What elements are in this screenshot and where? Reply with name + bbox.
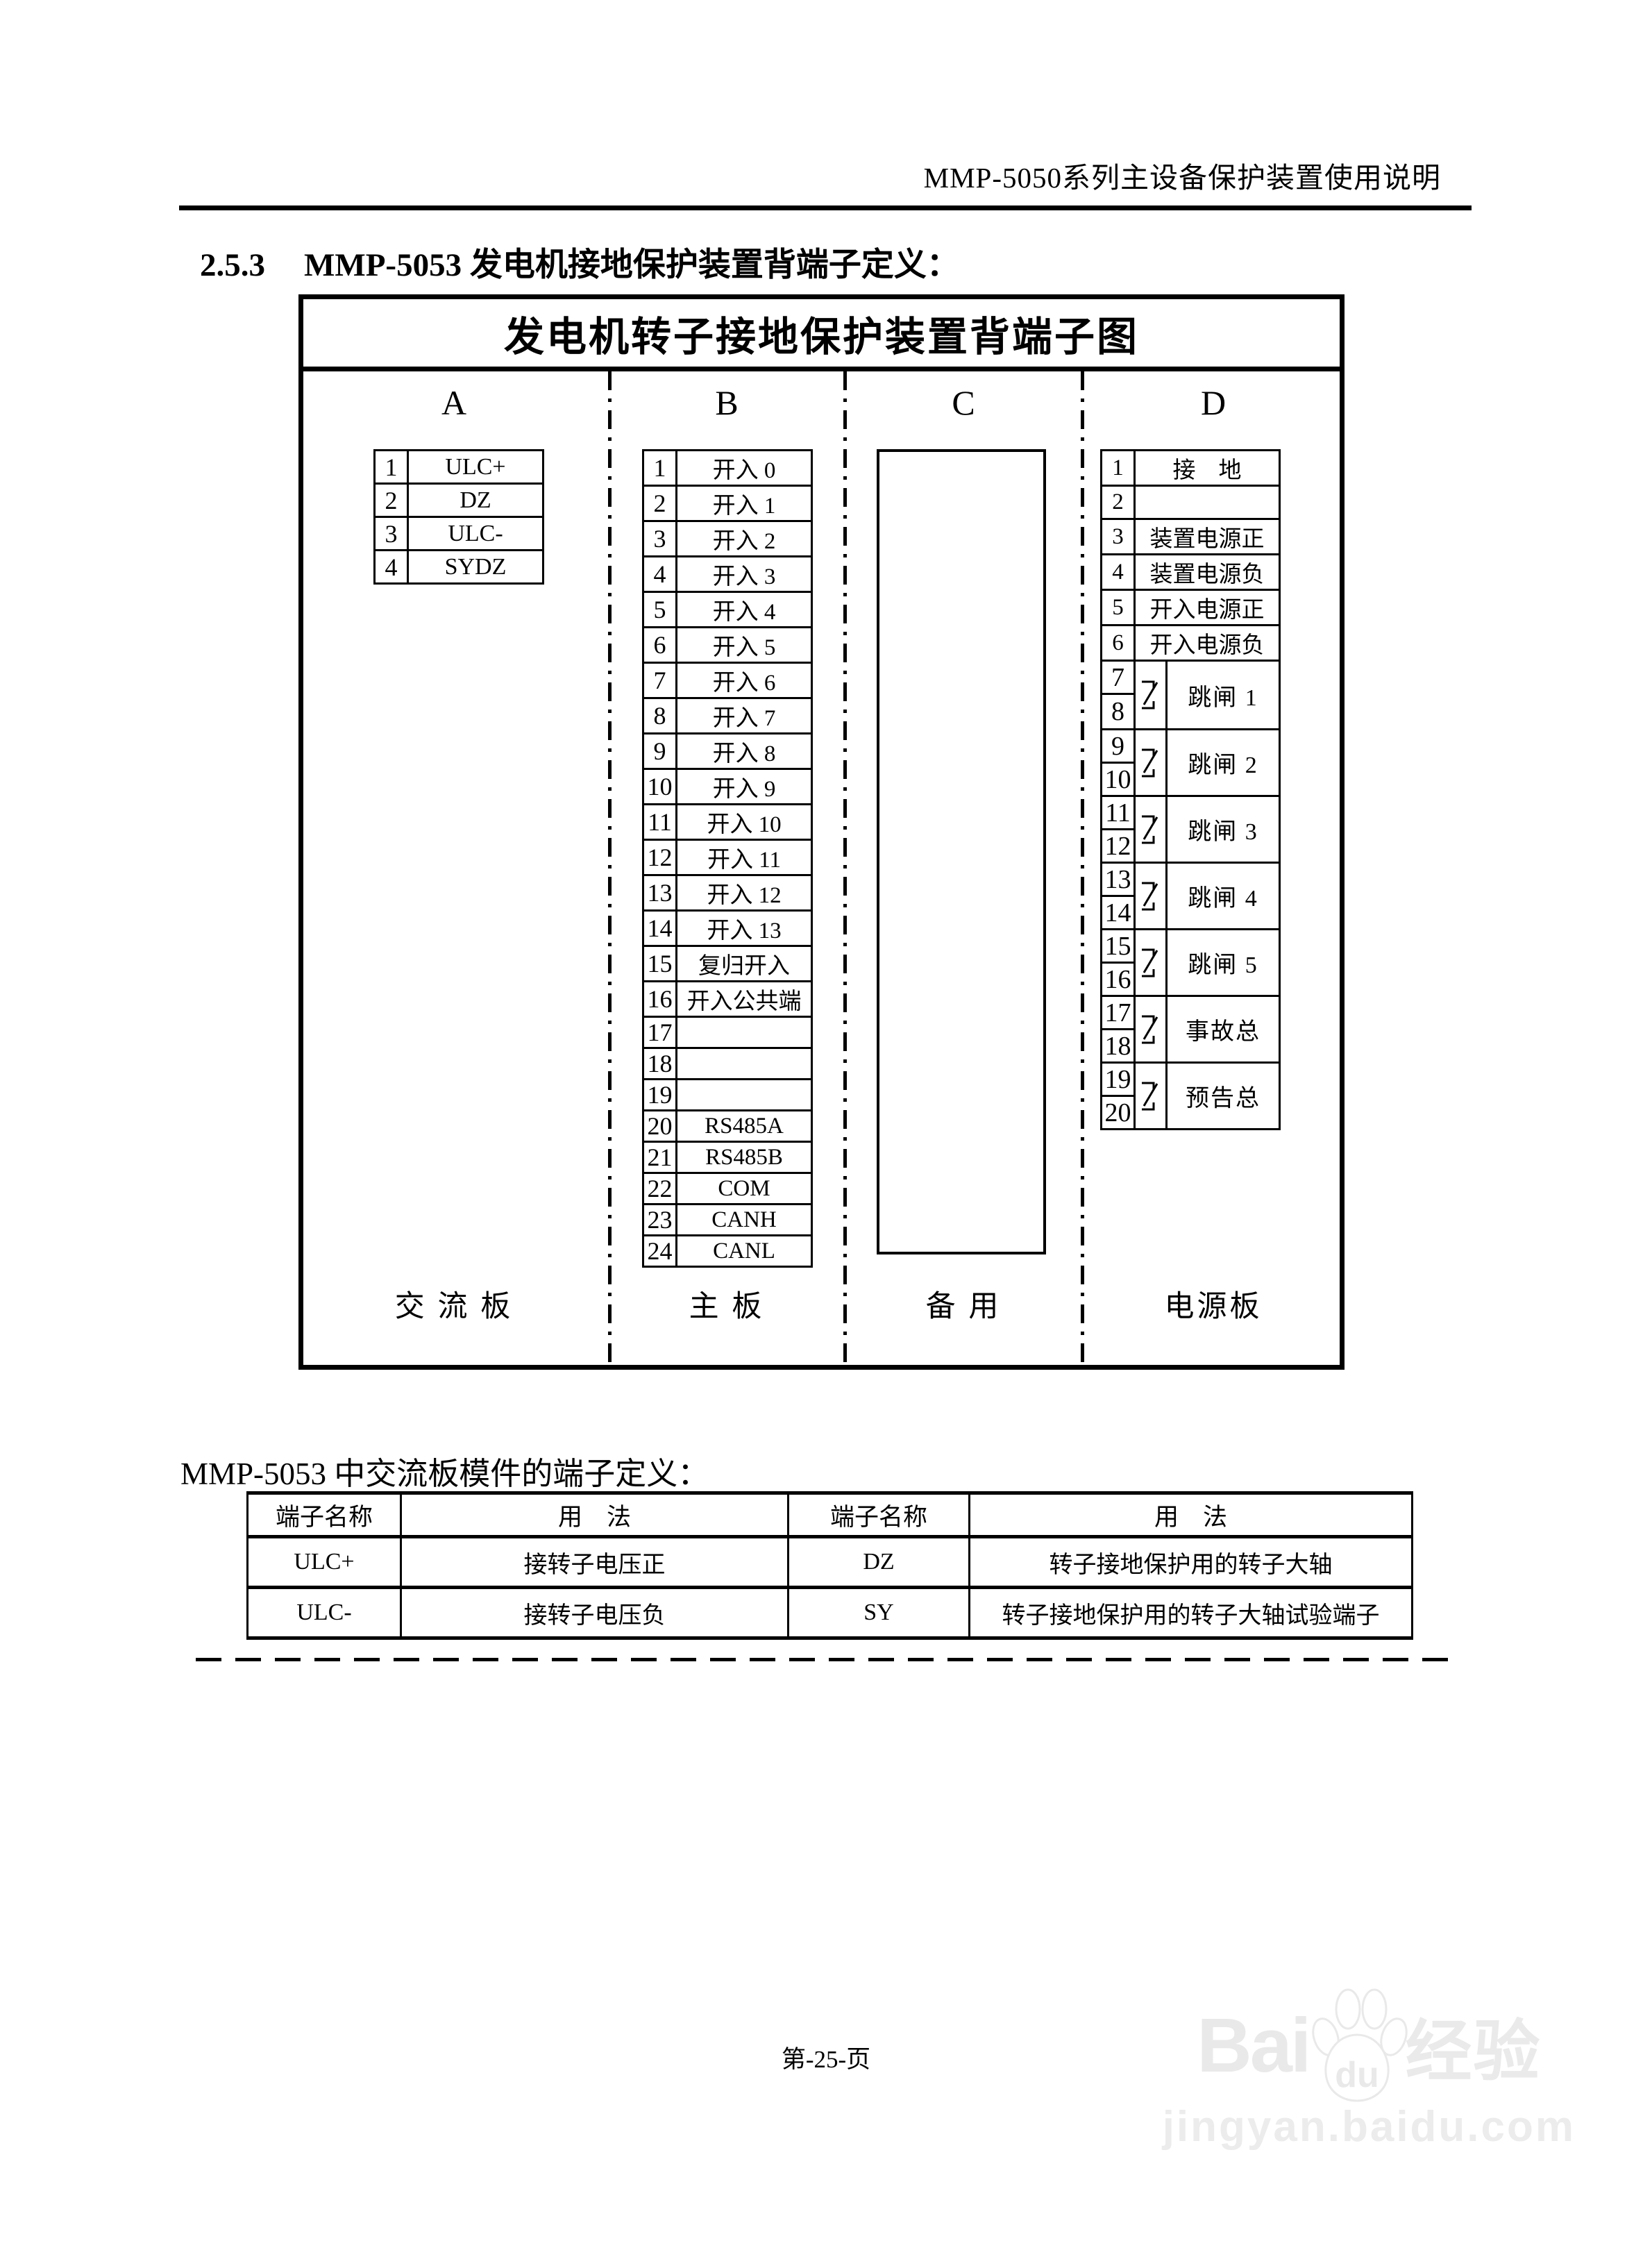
- terminal-label: 装置电源负: [1135, 555, 1280, 590]
- terminal-number: 6: [643, 628, 677, 663]
- relay-output-group: 9 10 跳闸 2: [1102, 728, 1279, 795]
- terminal-row: 2 开入 1: [643, 486, 812, 521]
- terminal-label: 开入 10: [677, 805, 812, 840]
- relay-contact-icon: [1136, 997, 1168, 1061]
- terminal-row: 9 开入 8: [643, 734, 812, 769]
- column-separator: [608, 371, 612, 1365]
- terminal-row: 2 DZ: [375, 484, 543, 517]
- terminal-row: 4 SYDZ: [375, 551, 543, 584]
- relay-output-groups: 7 8 跳闸 1: [1100, 662, 1281, 1130]
- terminal-name-cell: DZ: [789, 1537, 970, 1588]
- table-row: ULC+ 接转子电压正 DZ 转子接地保护用的转子大轴: [248, 1537, 1413, 1588]
- terminal-number: 9: [1102, 730, 1133, 764]
- terminal-number: 4: [375, 551, 408, 584]
- column-letter-c: C: [952, 383, 975, 423]
- terminal-row: 16 开入公共端: [643, 982, 812, 1017]
- usage-cell: 接转子电压正: [401, 1537, 789, 1588]
- relay-output-label: 事故总: [1168, 997, 1279, 1061]
- baidu-jingyan-text: 经验: [1405, 1997, 1541, 2094]
- terminal-number: 7: [1102, 662, 1133, 695]
- terminal-label: [677, 1048, 812, 1080]
- terminal-label: 开入 7: [677, 698, 812, 734]
- terminal-number: 1: [375, 451, 408, 484]
- terminal-row: 1 ULC+: [375, 451, 543, 484]
- board-label-ac: 交 流 板: [395, 1282, 514, 1325]
- terminal-label: 开入 5: [677, 628, 812, 663]
- relay-contact-icon: [1136, 1064, 1168, 1128]
- terminal-label: [677, 1080, 812, 1111]
- terminal-number: 10: [1102, 764, 1133, 795]
- terminal-label: RS485A: [677, 1111, 812, 1142]
- terminal-number: 19: [1102, 1064, 1133, 1097]
- relay-output-group: 11 12 跳闸 3: [1102, 795, 1279, 862]
- terminal-number: 17: [1102, 997, 1133, 1030]
- terminal-definitions-table: 端子名称 用 法 端子名称 用 法 ULC+ 接转子电压正 DZ 转子接地保护用…: [246, 1491, 1413, 1640]
- terminal-number: 17: [643, 1017, 677, 1048]
- header-cell-terminal-name: 端子名称: [789, 1493, 970, 1537]
- section-title: 2.5.3MMP-5053 发电机接地保护装置背端子定义：: [200, 237, 959, 285]
- terminal-row: 3 开入 2: [643, 521, 812, 557]
- baidu-logo-du: du: [1335, 2055, 1380, 2095]
- terminal-number: 18: [643, 1048, 677, 1080]
- terminal-number: 4: [1102, 555, 1135, 590]
- terminal-number: 14: [643, 911, 677, 946]
- terminal-row: 6 开入 5: [643, 628, 812, 663]
- terminal-number: 16: [643, 982, 677, 1017]
- terminal-name-cell: SY: [789, 1588, 970, 1638]
- board-label-power: 电源板: [1165, 1282, 1263, 1325]
- terminal-number: 1: [1102, 451, 1135, 486]
- relay-output-group: 17 18 事故总: [1102, 995, 1279, 1061]
- table-caption: MMP-5053 中交流板模件的端子定义：: [180, 1448, 709, 1493]
- terminal-row: 22 COM: [643, 1173, 812, 1205]
- terminal-number: 3: [1102, 519, 1135, 555]
- relay-output-label: 预告总: [1168, 1064, 1279, 1128]
- terminal-row: 5 开入 4: [643, 592, 812, 628]
- terminal-row: 18: [643, 1048, 812, 1080]
- terminal-number: 11: [643, 805, 677, 840]
- diagram-title: 发电机转子接地保护装置背端子图: [303, 299, 1340, 371]
- terminal-label: 开入 2: [677, 521, 812, 557]
- terminal-row: 3 装置电源正: [1102, 519, 1280, 555]
- relay-contact-icon: [1136, 662, 1168, 728]
- terminal-label: 装置电源正: [1135, 519, 1280, 555]
- dashed-divider: [196, 1658, 1459, 1661]
- terminal-label: 开入 8: [677, 734, 812, 769]
- terminal-number: 16: [1102, 964, 1133, 995]
- terminal-number: 15: [643, 946, 677, 982]
- terminal-label: 开入 4: [677, 592, 812, 628]
- relay-contact-icon: [1136, 864, 1168, 928]
- terminal-row: 23 CANH: [643, 1205, 812, 1236]
- terminal-number: 3: [643, 521, 677, 557]
- terminal-number: 3: [375, 517, 408, 551]
- terminal-number-pair: 9 10: [1102, 730, 1136, 795]
- terminal-label: 开入 3: [677, 557, 812, 592]
- terminal-number: 20: [643, 1111, 677, 1142]
- terminal-label: ULC-: [408, 517, 543, 551]
- terminal-number-pair: 19 20: [1102, 1064, 1136, 1128]
- header-cell-usage: 用 法: [401, 1493, 789, 1537]
- terminal-label: 接 地: [1135, 451, 1280, 486]
- terminal-row: 11 开入 10: [643, 805, 812, 840]
- relay-output-group: 7 8 跳闸 1: [1102, 662, 1279, 728]
- terminal-label: 开入 6: [677, 663, 812, 698]
- terminal-number: 6: [1102, 626, 1135, 661]
- relay-output-group: 15 16 跳闸 5: [1102, 928, 1279, 995]
- relay-output-label: 跳闸 2: [1168, 730, 1279, 795]
- board-label-spare: 备 用: [926, 1282, 1002, 1325]
- baidu-logo: Bai du 经验: [1197, 1983, 1541, 2108]
- relay-output-label: 跳闸 1: [1168, 662, 1279, 728]
- terminal-column-d: 1 接 地 2 3 装置电源正: [1100, 449, 1281, 1130]
- terminal-number: 10: [643, 769, 677, 805]
- table-row: ULC- 接转子电压负 SY 转子接地保护用的转子大轴试验端子: [248, 1588, 1413, 1638]
- terminal-label: 开入 0: [677, 451, 812, 486]
- terminal-table-a: 1 ULC+ 2 DZ 3 ULC- 4 SY: [373, 449, 544, 585]
- terminal-number-pair: 7 8: [1102, 662, 1136, 728]
- terminal-row: 15 复归开入: [643, 946, 812, 982]
- terminal-label: 开入电源正: [1135, 590, 1280, 626]
- terminal-row: 24 CANL: [643, 1236, 812, 1267]
- terminal-number: 5: [1102, 590, 1135, 626]
- terminal-label: 开入 11: [677, 840, 812, 875]
- terminal-number: 8: [643, 698, 677, 734]
- terminal-label: CANH: [677, 1205, 812, 1236]
- terminal-row: 14 开入 13: [643, 911, 812, 946]
- relay-output-group: 19 20 预告总: [1102, 1061, 1279, 1128]
- terminal-number: 11: [1102, 797, 1133, 830]
- terminal-label: 开入 12: [677, 875, 812, 911]
- terminal-table-b: 1 开入 0 2 开入 1 3 开入 2 4: [642, 449, 813, 1268]
- terminal-row: 1 开入 0: [643, 451, 812, 486]
- terminal-number: 12: [643, 840, 677, 875]
- column-separator: [1081, 371, 1084, 1365]
- terminal-diagram: 发电机转子接地保护装置背端子图 A B C D 1 ULC+ 2 DZ: [298, 294, 1345, 1370]
- terminal-row: 1 接 地: [1102, 451, 1280, 486]
- relay-contact-icon: [1136, 797, 1168, 862]
- terminal-row: 13 开入 12: [643, 875, 812, 911]
- terminal-number: 13: [1102, 864, 1133, 897]
- terminal-label: SYDZ: [408, 551, 543, 584]
- section-number: 2.5.3: [200, 247, 265, 283]
- terminal-number-pair: 15 16: [1102, 930, 1136, 995]
- terminal-number: 22: [643, 1173, 677, 1205]
- terminal-number: 5: [643, 592, 677, 628]
- terminal-label: ULC+: [408, 451, 543, 484]
- column-letter-b: B: [715, 383, 738, 423]
- terminal-number: 13: [643, 875, 677, 911]
- terminal-number: 8: [1102, 695, 1133, 728]
- terminal-number: 18: [1102, 1030, 1133, 1061]
- terminal-label: CANL: [677, 1236, 812, 1267]
- terminal-number-pair: 17 18: [1102, 997, 1136, 1061]
- baidu-logo-text: Bai: [1197, 2001, 1309, 2090]
- terminal-number: 15: [1102, 930, 1133, 964]
- column-separator: [843, 371, 847, 1365]
- terminal-number: 14: [1102, 897, 1133, 928]
- terminal-number: 7: [643, 663, 677, 698]
- terminal-table-d: 1 接 地 2 3 装置电源正: [1100, 449, 1281, 662]
- terminal-number: 1: [643, 451, 677, 486]
- terminal-label: [1135, 486, 1280, 519]
- terminal-label: 开入 9: [677, 769, 812, 805]
- usage-cell: 转子接地保护用的转子大轴: [970, 1537, 1413, 1588]
- terminal-number: 23: [643, 1205, 677, 1236]
- relay-contact-icon: [1136, 730, 1168, 795]
- header-rule: [179, 205, 1472, 210]
- terminal-number: 2: [1102, 486, 1135, 519]
- terminal-row: 3 ULC-: [375, 517, 543, 551]
- terminal-number: 2: [375, 484, 408, 517]
- terminal-label: 开入公共端: [677, 982, 812, 1017]
- board-label-main: 主 板: [689, 1282, 765, 1325]
- terminal-number: 4: [643, 557, 677, 592]
- relay-output-label: 跳闸 5: [1168, 930, 1279, 995]
- terminal-row: 4 装置电源负: [1102, 555, 1280, 590]
- terminal-number-pair: 11 12: [1102, 797, 1136, 862]
- terminal-name-cell: ULC-: [248, 1588, 401, 1638]
- column-letter-d: D: [1201, 383, 1226, 423]
- usage-cell: 转子接地保护用的转子大轴试验端子: [970, 1588, 1413, 1638]
- terminal-number-pair: 13 14: [1102, 864, 1136, 928]
- header-cell-usage: 用 法: [970, 1493, 1413, 1537]
- terminal-label: 开入 1: [677, 486, 812, 521]
- terminal-row: 2: [1102, 486, 1280, 519]
- terminal-label: RS485B: [677, 1142, 812, 1173]
- terminal-row: 6 开入电源负: [1102, 626, 1280, 661]
- diagram-body: A B C D 1 ULC+ 2 DZ: [303, 371, 1340, 1365]
- terminal-number: 2: [643, 486, 677, 521]
- baidu-paw-icon: du: [1305, 1983, 1409, 2108]
- terminal-row: 19: [643, 1080, 812, 1111]
- section-title-text: MMP-5053 发电机接地保护装置背端子定义：: [304, 247, 959, 283]
- usage-cell: 接转子电压负: [401, 1588, 789, 1638]
- terminal-label: 开入电源负: [1135, 626, 1280, 661]
- terminal-label: COM: [677, 1173, 812, 1205]
- spare-area-box: [877, 449, 1046, 1254]
- terminal-number: 12: [1102, 830, 1133, 862]
- terminal-number: 9: [643, 734, 677, 769]
- column-letter-a: A: [441, 383, 466, 423]
- terminal-row: 20 RS485A: [643, 1111, 812, 1142]
- terminal-label: 复归开入: [677, 946, 812, 982]
- relay-contact-icon: [1136, 930, 1168, 995]
- terminal-number: 21: [643, 1142, 677, 1173]
- definitions-table-header: 端子名称 用 法 端子名称 用 法: [248, 1493, 1413, 1537]
- terminal-row: 8 开入 7: [643, 698, 812, 734]
- terminal-number: 24: [643, 1236, 677, 1267]
- terminal-row: 4 开入 3: [643, 557, 812, 592]
- relay-output-group: 13 14 跳闸 4: [1102, 862, 1279, 928]
- terminal-row: 10 开入 9: [643, 769, 812, 805]
- terminal-label: DZ: [408, 484, 543, 517]
- terminal-row: 21 RS485B: [643, 1142, 812, 1173]
- terminal-name-cell: ULC+: [248, 1537, 401, 1588]
- terminal-row: 7 开入 6: [643, 663, 812, 698]
- terminal-row: 17: [643, 1017, 812, 1048]
- terminal-label: [677, 1017, 812, 1048]
- terminal-number: 20: [1102, 1097, 1133, 1128]
- terminal-row: 12 开入 11: [643, 840, 812, 875]
- terminal-number: 19: [643, 1080, 677, 1111]
- baidu-watermark-url: jingyan.baidu.com: [1163, 2102, 1576, 2151]
- document-header: MMP-5050系列主设备保护装置使用说明: [924, 154, 1441, 196]
- relay-output-label: 跳闸 3: [1168, 797, 1279, 862]
- terminal-row: 5 开入电源正: [1102, 590, 1280, 626]
- terminal-label: 开入 13: [677, 911, 812, 946]
- header-cell-terminal-name: 端子名称: [248, 1493, 401, 1537]
- relay-output-label: 跳闸 4: [1168, 864, 1279, 928]
- baidu-watermark: Bai du 经验 jingyan.baidu.com: [1163, 1983, 1576, 2151]
